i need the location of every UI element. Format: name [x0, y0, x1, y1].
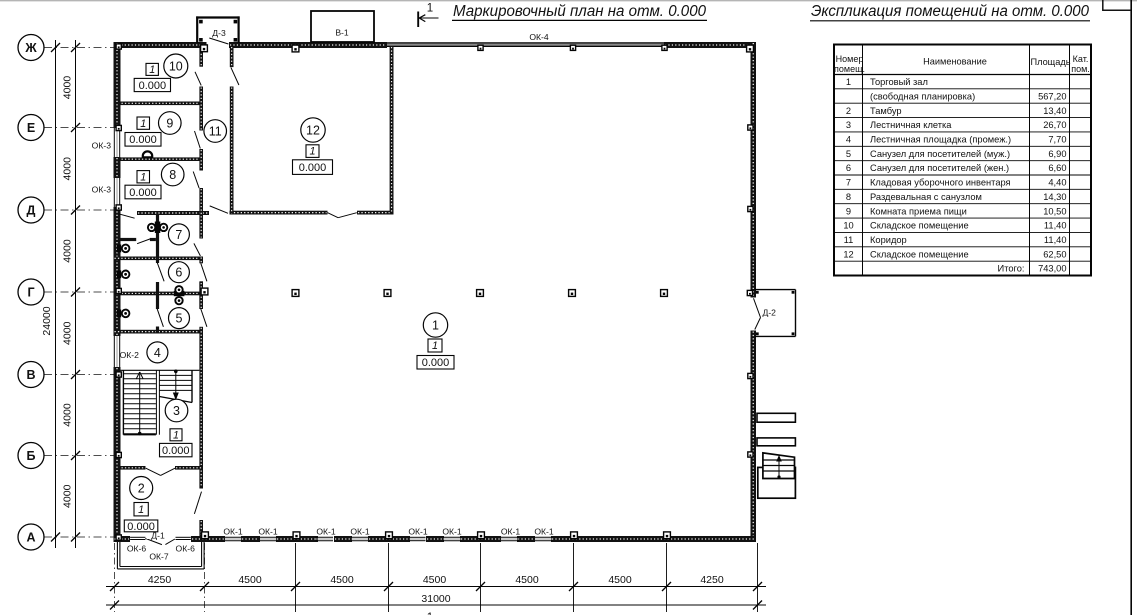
svg-text:1: 1: [432, 318, 439, 332]
svg-text:Итого:: Итого:: [998, 264, 1025, 274]
svg-text:10: 10: [843, 221, 853, 231]
svg-text:Д-2: Д-2: [763, 307, 777, 317]
svg-text:4,40: 4,40: [1048, 178, 1066, 188]
svg-text:1: 1: [149, 64, 155, 76]
svg-text:0.000: 0.000: [299, 162, 327, 174]
svg-text:10,50: 10,50: [1043, 206, 1066, 216]
svg-text:6,60: 6,60: [1048, 163, 1066, 173]
svg-text:14,30: 14,30: [1043, 192, 1066, 202]
svg-text:ОК-1: ОК-1: [350, 526, 370, 536]
svg-text:ОК-3: ОК-3: [92, 185, 112, 195]
svg-text:ОК-1: ОК-1: [501, 526, 521, 536]
svg-text:ОК-1: ОК-1: [258, 526, 278, 536]
svg-text:В: В: [26, 368, 35, 382]
svg-text:0.000: 0.000: [139, 80, 167, 92]
svg-text:11: 11: [844, 235, 854, 245]
svg-text:743,00: 743,00: [1038, 264, 1066, 274]
svg-text:4000: 4000: [62, 239, 74, 263]
svg-text:13,40: 13,40: [1043, 106, 1066, 116]
svg-text:Кладовая уборочного инвентаря: Кладовая уборочного инвентаря: [870, 178, 1011, 188]
svg-text:4250: 4250: [148, 574, 172, 586]
svg-text:ОК-6: ОК-6: [127, 543, 147, 553]
svg-text:1: 1: [140, 118, 146, 130]
svg-text:62,50: 62,50: [1043, 249, 1066, 259]
svg-text:1: 1: [427, 3, 433, 15]
svg-text:0.000: 0.000: [129, 134, 157, 146]
svg-text:5: 5: [846, 149, 851, 159]
svg-text:Е: Е: [27, 121, 35, 135]
svg-text:5: 5: [176, 312, 183, 326]
svg-text:7,70: 7,70: [1048, 135, 1066, 145]
svg-text:0.000: 0.000: [422, 357, 450, 369]
svg-text:4250: 4250: [700, 574, 724, 586]
svg-text:Складское помещение: Складское помещение: [870, 249, 969, 259]
svg-text:Раздевальная с санузлом: Раздевальная с санузлом: [870, 192, 982, 202]
svg-text:12: 12: [306, 123, 320, 137]
svg-text:26,70: 26,70: [1043, 120, 1066, 130]
svg-text:Торговый зал: Торговый зал: [870, 77, 928, 87]
svg-text:ОК-1: ОК-1: [442, 526, 462, 536]
svg-text:4500: 4500: [330, 574, 354, 586]
svg-text:1: 1: [432, 340, 438, 352]
svg-text:пом.: пом.: [1071, 64, 1090, 74]
svg-text:1: 1: [173, 429, 179, 441]
svg-text:В-1: В-1: [335, 27, 349, 37]
svg-text:Коридор: Коридор: [870, 235, 907, 245]
svg-text:12: 12: [843, 249, 853, 259]
svg-text:7: 7: [175, 228, 182, 242]
svg-text:6: 6: [846, 163, 851, 173]
svg-text:6: 6: [175, 266, 182, 280]
svg-text:31000: 31000: [421, 593, 450, 605]
svg-text:Кат.: Кат.: [1073, 54, 1089, 64]
svg-text:24000: 24000: [41, 306, 53, 335]
svg-text:4: 4: [154, 346, 161, 360]
svg-text:Ж: Ж: [24, 41, 37, 55]
svg-text:0.000: 0.000: [162, 445, 190, 457]
svg-text:9: 9: [166, 116, 173, 130]
svg-text:567,20: 567,20: [1038, 91, 1066, 101]
svg-text:Складское помещение: Складское помещение: [870, 221, 969, 231]
svg-text:1: 1: [309, 146, 315, 158]
svg-text:4000: 4000: [62, 76, 74, 100]
svg-text:помещ.: помещ.: [834, 64, 865, 74]
svg-text:4000: 4000: [62, 403, 74, 427]
svg-text:Лестничная площадка (промеж.): Лестничная площадка (промеж.): [870, 135, 1011, 145]
svg-text:10: 10: [169, 59, 183, 73]
svg-text:1: 1: [846, 77, 851, 87]
svg-text:Тамбур: Тамбур: [870, 106, 902, 116]
svg-text:ОК-6: ОК-6: [176, 543, 196, 553]
svg-text:1: 1: [140, 171, 146, 183]
svg-text:ОК-1: ОК-1: [408, 526, 428, 536]
svg-text:Санузел для посетителей (жен.): Санузел для посетителей (жен.): [870, 163, 1009, 173]
svg-text:0.000: 0.000: [129, 187, 157, 199]
svg-text:Маркировочный план на отм. 0.0: Маркировочный план на отм. 0.000: [453, 3, 706, 20]
svg-text:4000: 4000: [62, 157, 74, 181]
svg-text:Д-3: Д-3: [212, 28, 226, 38]
svg-text:6,90: 6,90: [1048, 149, 1066, 159]
svg-text:Д: Д: [27, 203, 36, 217]
svg-text:11,40: 11,40: [1044, 235, 1067, 245]
svg-text:ОК-3: ОК-3: [92, 140, 112, 150]
svg-text:ОК-7: ОК-7: [149, 552, 169, 562]
svg-text:А: А: [26, 530, 35, 544]
svg-text:4: 4: [846, 135, 851, 145]
svg-text:2: 2: [138, 481, 145, 495]
svg-text:4500: 4500: [238, 574, 262, 586]
svg-text:ОК-1: ОК-1: [223, 526, 243, 536]
svg-text:1: 1: [138, 504, 144, 516]
svg-text:3: 3: [173, 404, 180, 418]
svg-text:Лестничная клетка: Лестничная клетка: [870, 120, 952, 130]
svg-text:2: 2: [846, 106, 851, 116]
svg-text:4500: 4500: [608, 574, 632, 586]
svg-text:0.000: 0.000: [127, 521, 155, 533]
svg-text:Г: Г: [27, 285, 34, 299]
svg-text:7: 7: [846, 178, 851, 188]
svg-text:4500: 4500: [515, 574, 539, 586]
svg-text:3: 3: [846, 120, 851, 130]
svg-text:9: 9: [846, 206, 851, 216]
svg-text:11: 11: [209, 124, 222, 138]
svg-text:Комната приема пищи: Комната приема пищи: [870, 206, 967, 216]
svg-text:Санузел для посетителей (муж.): Санузел для посетителей (муж.): [870, 149, 1010, 159]
svg-text:Номер: Номер: [836, 54, 864, 64]
svg-text:Площадь: Площадь: [1031, 57, 1071, 67]
svg-text:4000: 4000: [62, 484, 74, 508]
svg-text:Наименование: Наименование: [923, 57, 987, 67]
svg-text:8: 8: [846, 192, 851, 202]
svg-text:Б: Б: [27, 449, 36, 463]
svg-text:8: 8: [169, 168, 176, 182]
svg-text:4500: 4500: [423, 574, 447, 586]
svg-text:(свободная планировка): (свободная планировка): [870, 91, 975, 101]
svg-text:ОК-1: ОК-1: [534, 526, 554, 536]
svg-text:ОК-4: ОК-4: [529, 32, 549, 42]
svg-text:11,40: 11,40: [1044, 221, 1067, 231]
svg-text:Экспликация помещений на отм.: Экспликация помещений на отм. 0.000: [811, 3, 1089, 20]
svg-text:ОК-2: ОК-2: [120, 350, 140, 360]
svg-text:4000: 4000: [62, 321, 74, 345]
svg-text:ОК-1: ОК-1: [316, 526, 336, 536]
